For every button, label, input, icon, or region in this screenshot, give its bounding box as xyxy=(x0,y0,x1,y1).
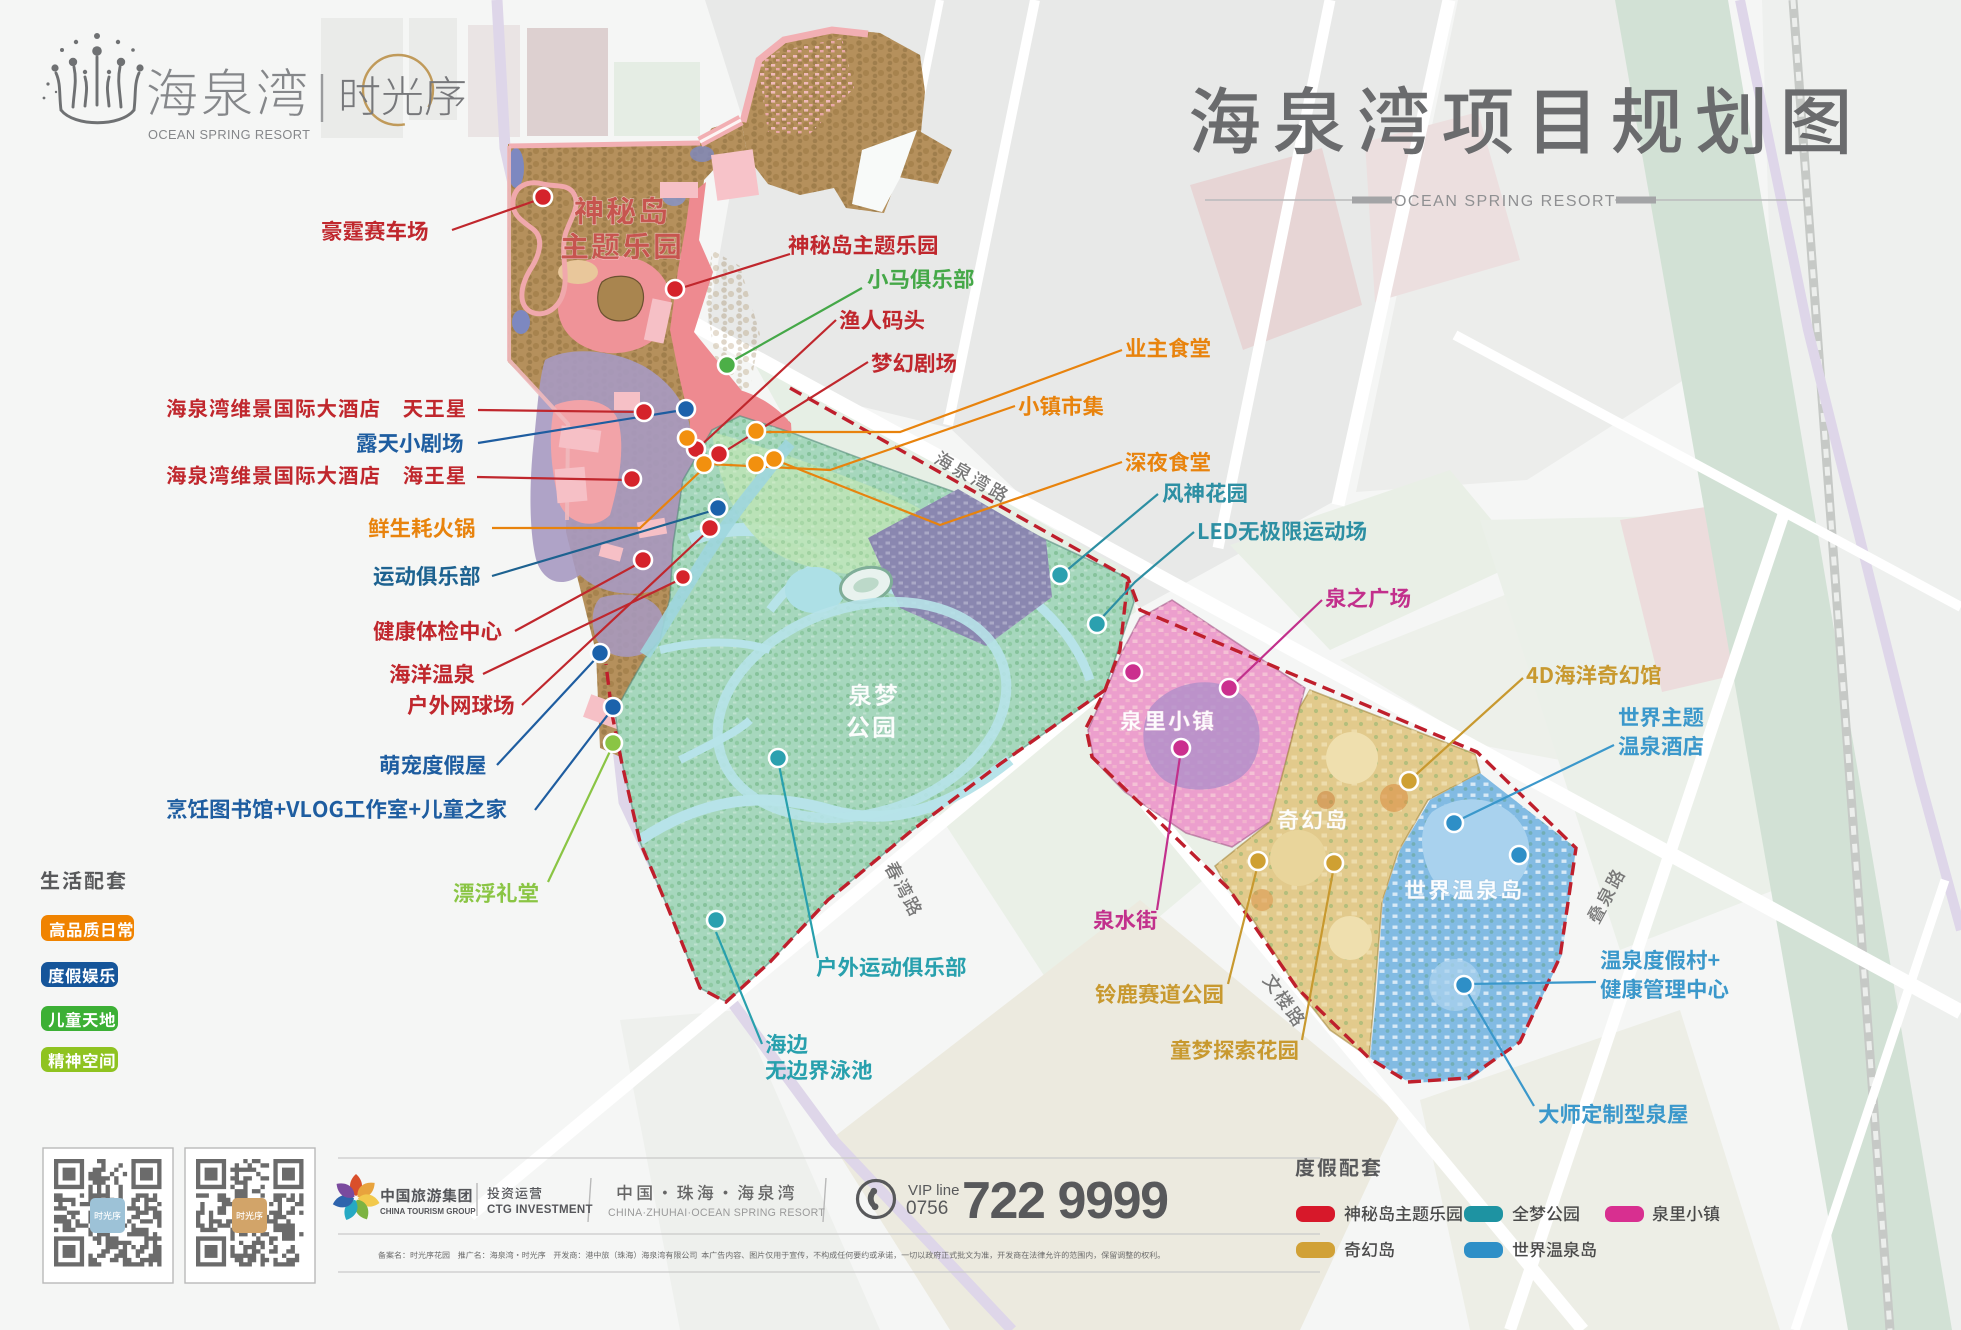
svg-text:CHINA·ZHUHAI·OCEAN SPRING RESO: CHINA·ZHUHAI·OCEAN SPRING RESORT xyxy=(608,1207,825,1219)
svg-text:722 9999: 722 9999 xyxy=(962,1172,1169,1230)
svg-text:OCEAN SPRING RESORT: OCEAN SPRING RESORT xyxy=(148,127,310,142)
svg-text:CHINA TOURISM GROUP: CHINA TOURISM GROUP xyxy=(380,1207,476,1216)
svg-text:VIP line: VIP line xyxy=(908,1182,959,1199)
svg-text:0756: 0756 xyxy=(906,1198,948,1219)
svg-text:OCEAN SPRING RESORT: OCEAN SPRING RESORT xyxy=(1394,193,1616,210)
svg-text:CTG INVESTMENT: CTG INVESTMENT xyxy=(487,1204,593,1216)
